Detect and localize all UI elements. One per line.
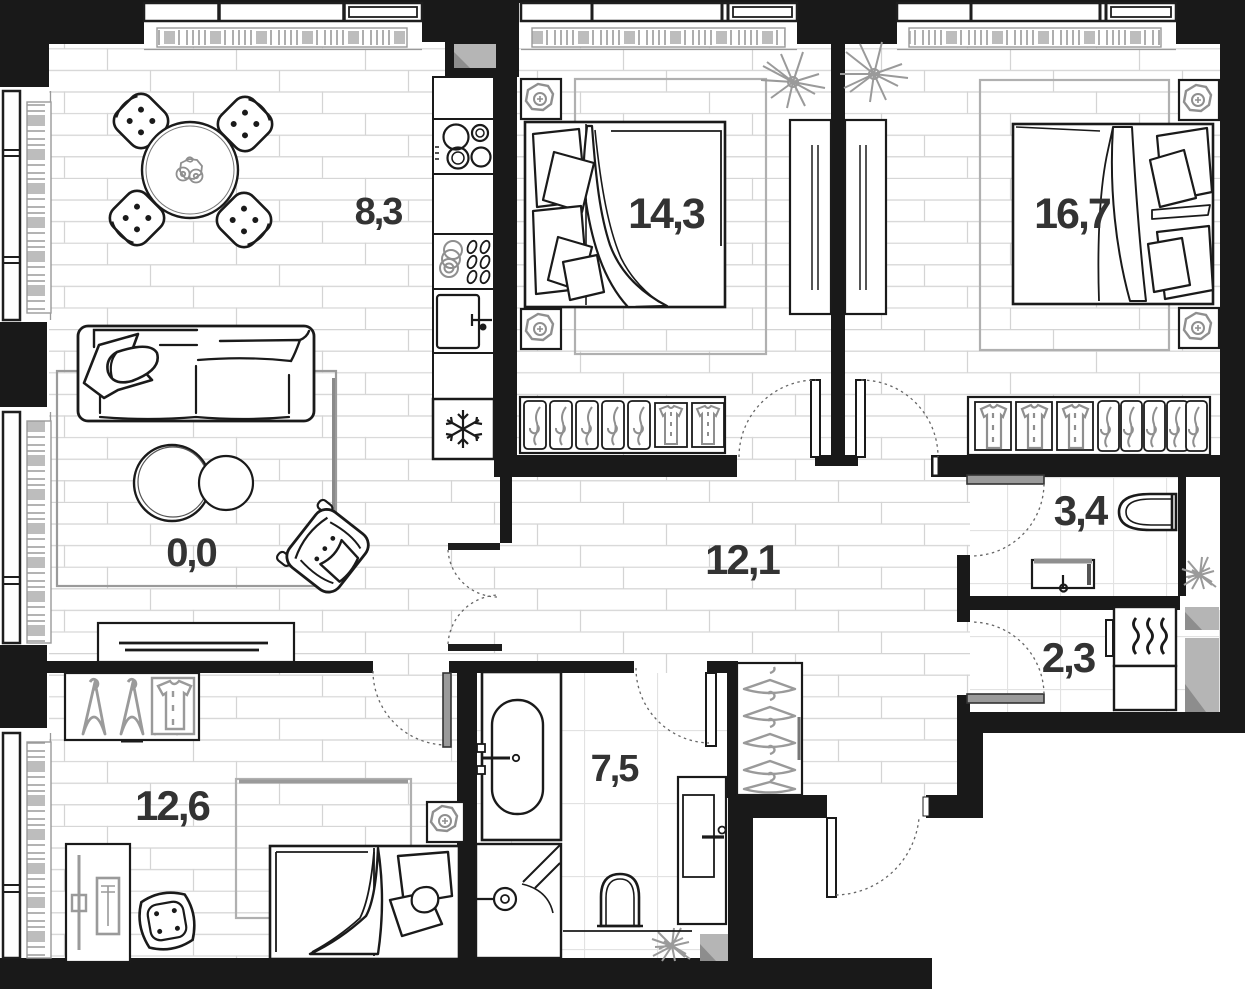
svg-text:2,3: 2,3 (1042, 634, 1095, 681)
svg-text:3,4: 3,4 (1054, 487, 1109, 534)
svg-text:14,3: 14,3 (628, 190, 705, 238)
svg-text:0,0: 0,0 (166, 531, 216, 575)
svg-text:12,6: 12,6 (135, 782, 209, 829)
svg-text:7,5: 7,5 (591, 748, 640, 790)
svg-text:16,7: 16,7 (1034, 190, 1111, 238)
svg-text:12,1: 12,1 (705, 536, 780, 583)
svg-text:8,3: 8,3 (355, 191, 403, 233)
